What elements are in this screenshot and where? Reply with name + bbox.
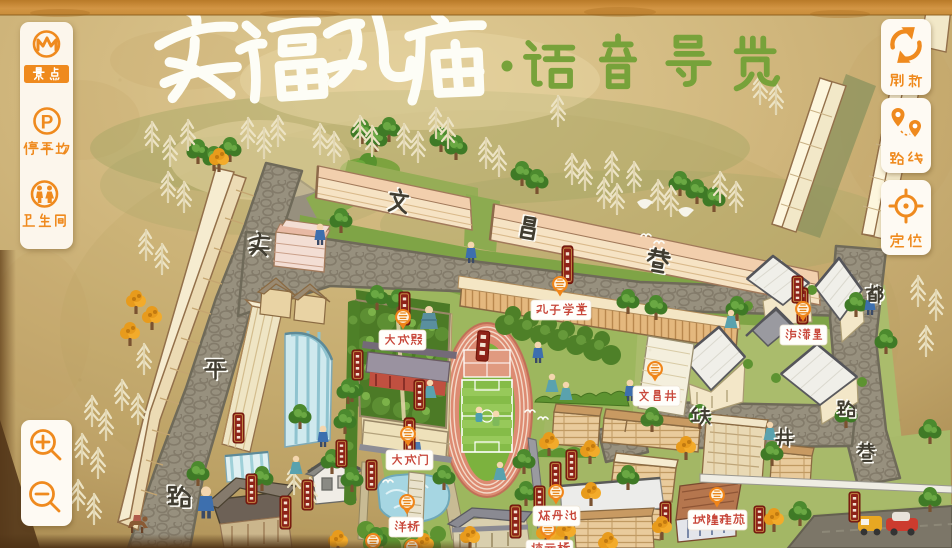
svg-text:P: P — [41, 113, 54, 134]
